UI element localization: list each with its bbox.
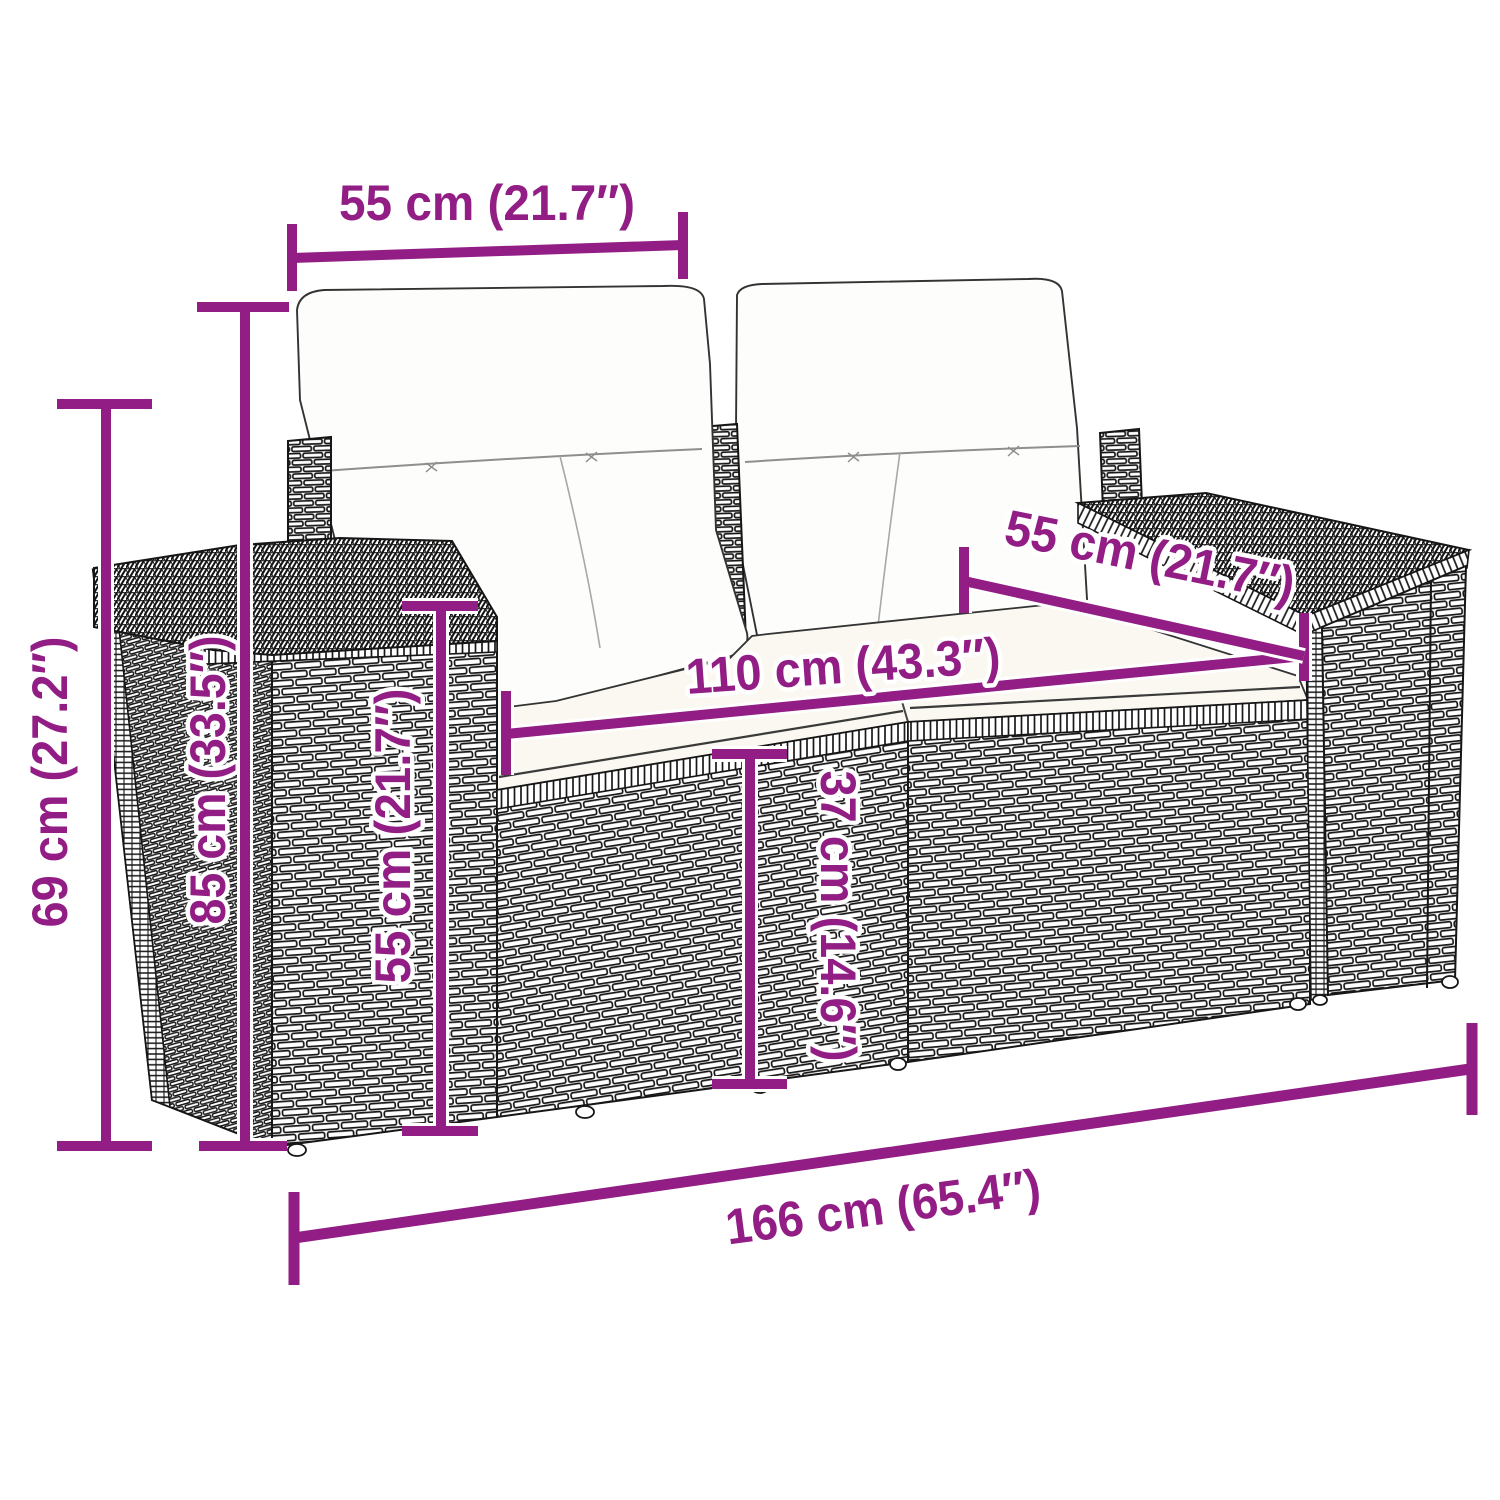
svg-text:85 cm (33.5″): 85 cm (33.5″) (180, 636, 236, 925)
svg-text:69 cm (27.2″): 69 cm (27.2″) (22, 637, 78, 928)
svg-text:55 cm (21.7″): 55 cm (21.7″) (339, 175, 635, 231)
svg-text:37 cm (14.6″): 37 cm (14.6″) (810, 771, 866, 1062)
svg-text:55 cm (21.7″): 55 cm (21.7″) (365, 689, 421, 984)
